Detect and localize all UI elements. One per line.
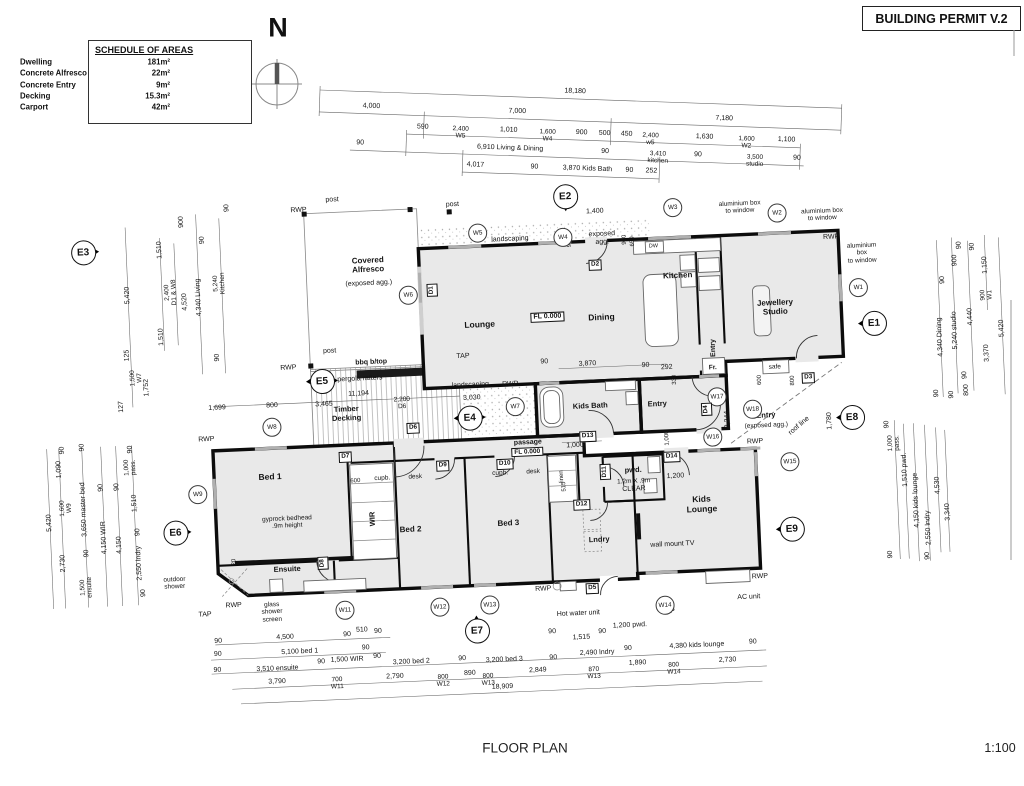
sheet-scale: 1:100 <box>984 741 1015 755</box>
north-compass-icon <box>0 0 1024 762</box>
floor-plan-sheet: { "permit_label": "BUILDING PERMIT V.2",… <box>0 0 1024 762</box>
sheet-title: FLOOR PLAN <box>482 741 568 756</box>
